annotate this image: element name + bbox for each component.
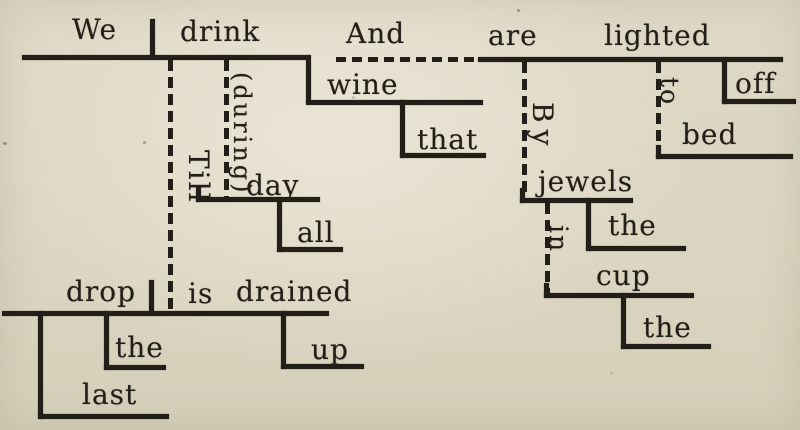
- word-verb-is: is: [188, 280, 213, 308]
- drop-the-hanger-line: [104, 311, 109, 370]
- word-conjunction-till: Till: [184, 150, 212, 204]
- up-hanger-line: [281, 311, 286, 369]
- word-prep-to: to: [657, 77, 682, 106]
- off-step-line: [722, 57, 727, 104]
- paper-speck: [610, 372, 613, 375]
- jewels-the-shelf-line: [586, 246, 686, 251]
- word-verb-drink: drink: [180, 18, 260, 46]
- word-modifier-that: that: [417, 126, 478, 154]
- drop-the-shelf-line: [104, 365, 166, 370]
- word-particle-off: off: [735, 70, 776, 98]
- word-verb-are: are: [488, 22, 538, 50]
- word-verb-drained: drained: [236, 278, 352, 306]
- subject-verb-divider: [150, 19, 155, 59]
- word-prep-by: By: [528, 102, 556, 152]
- drop-is-divider: [149, 280, 154, 314]
- word-prep-in: in: [546, 225, 571, 253]
- last-hanger-line: [38, 311, 43, 419]
- jewels-the-hanger-line: [586, 198, 591, 251]
- all-hanger-line: [277, 197, 282, 252]
- word-conjunction-and: And: [346, 20, 405, 48]
- word-verb-lighted: lighted: [604, 22, 711, 50]
- till-dashed-line: [168, 60, 173, 311]
- paper-speck: [3, 142, 7, 145]
- paper-speck: [517, 9, 520, 12]
- bed-baseline: [656, 154, 793, 159]
- object-step-line: [306, 55, 311, 104]
- word-subject-drop: drop: [66, 278, 136, 306]
- paper-speck: [352, 96, 355, 99]
- word-modifier-the-jewels: the: [608, 212, 657, 240]
- word-bed: bed: [682, 121, 737, 149]
- word-modifier-the-drop: the: [115, 334, 164, 362]
- cup-baseline: [544, 293, 694, 298]
- word-modifier-all: all: [297, 219, 335, 247]
- word-particle-up: up: [311, 336, 349, 364]
- last-shelf-line: [38, 414, 169, 419]
- word-modifier-the-cup: the: [643, 314, 692, 342]
- word-modifier-last: last: [82, 381, 137, 409]
- word-cup: cup: [596, 262, 651, 290]
- word-object-wine: wine: [327, 71, 399, 99]
- word-subject-we: We: [72, 16, 117, 44]
- that-hanger-line: [400, 100, 405, 158]
- main-clause-baseline: [22, 55, 310, 60]
- sentence-diagram-page: We drink wine that (during) day all And …: [0, 0, 800, 430]
- paper-speck: [143, 141, 146, 144]
- jewels-baseline: [520, 198, 633, 203]
- cup-the-hanger-line: [621, 293, 626, 349]
- to-dashed-line: [656, 62, 661, 154]
- word-jewels: jewels: [538, 168, 633, 196]
- and-dashed-connector: [336, 57, 478, 62]
- cup-the-shelf-line: [621, 344, 711, 349]
- subordinate-clause-baseline: [2, 311, 329, 316]
- word-day: day: [246, 172, 299, 200]
